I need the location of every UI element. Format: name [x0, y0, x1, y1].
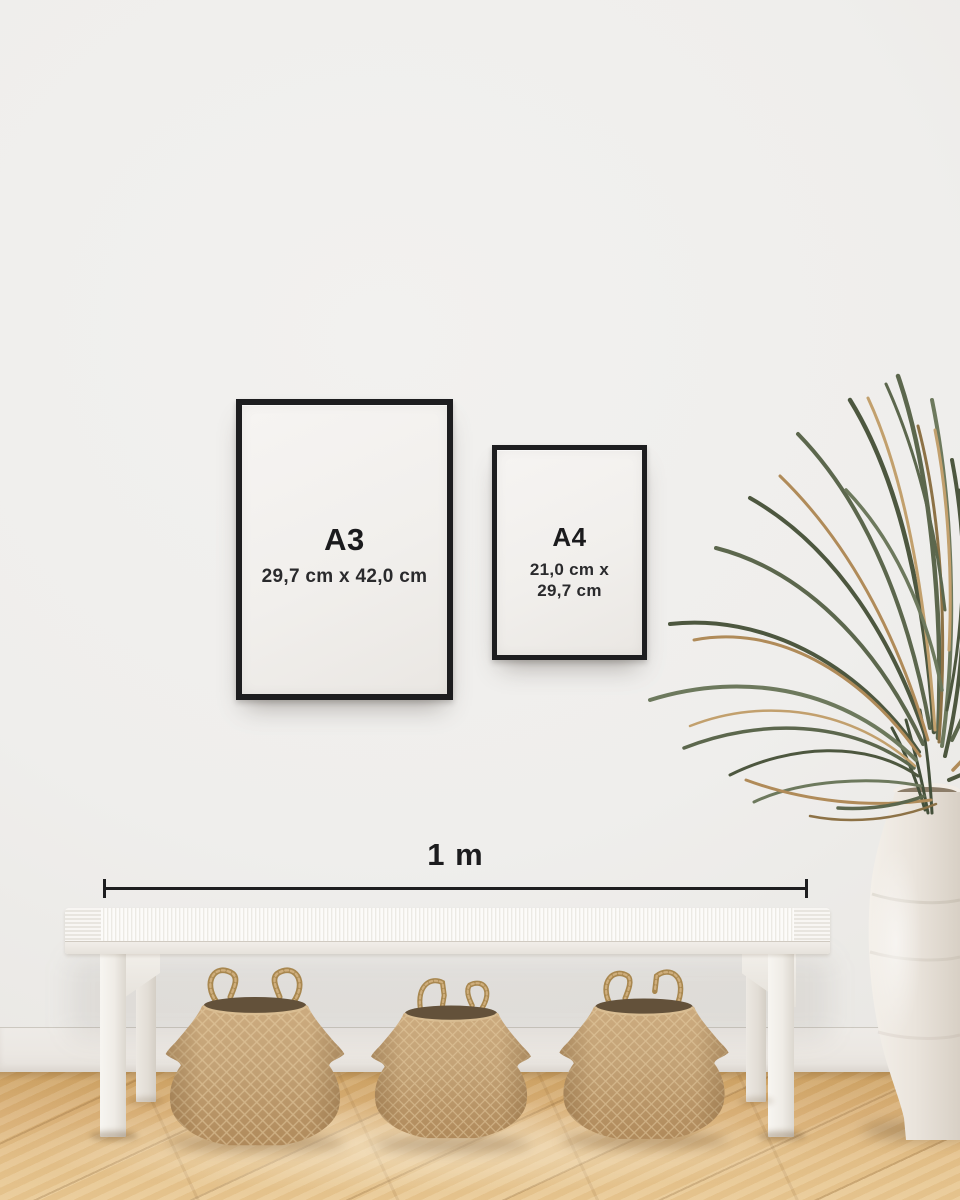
bench-seat — [65, 908, 830, 954]
a4-frame-label: A4 — [552, 524, 586, 550]
scale-bar: 1 m — [103, 839, 808, 890]
a3-frame-label: A3 — [324, 524, 365, 555]
seagrass-basket-center — [366, 963, 536, 1150]
bench-leg-shadow — [90, 1131, 138, 1141]
bench-leg-shadow — [758, 1131, 806, 1141]
seagrass-basket-left — [158, 959, 352, 1149]
a3-frame-size: 29,7 cm x 42,0 cm — [262, 566, 428, 588]
dried-palm-plant — [598, 308, 960, 828]
scale-bar-line — [103, 887, 808, 890]
seagrass-basket-right — [554, 960, 734, 1145]
scale-bar-label: 1 m — [103, 839, 808, 870]
bench-leg-front-left — [100, 950, 126, 1137]
bench-leg-front-right — [768, 950, 794, 1137]
bench-front-apron — [65, 941, 830, 954]
scale-bar-tick-left — [103, 879, 106, 898]
a3-frame-paper: A3 29,7 cm x 42,0 cm — [242, 405, 447, 694]
bench-leg-shadow — [738, 1097, 774, 1105]
scale-bar-tick-right — [805, 879, 808, 898]
ceramic-urn-vase — [858, 782, 960, 1142]
room-scene: A3 29,7 cm x 42,0 cm A4 21,0 cm x 29,7 c… — [0, 0, 960, 1200]
a3-frame: A3 29,7 cm x 42,0 cm — [236, 399, 453, 700]
